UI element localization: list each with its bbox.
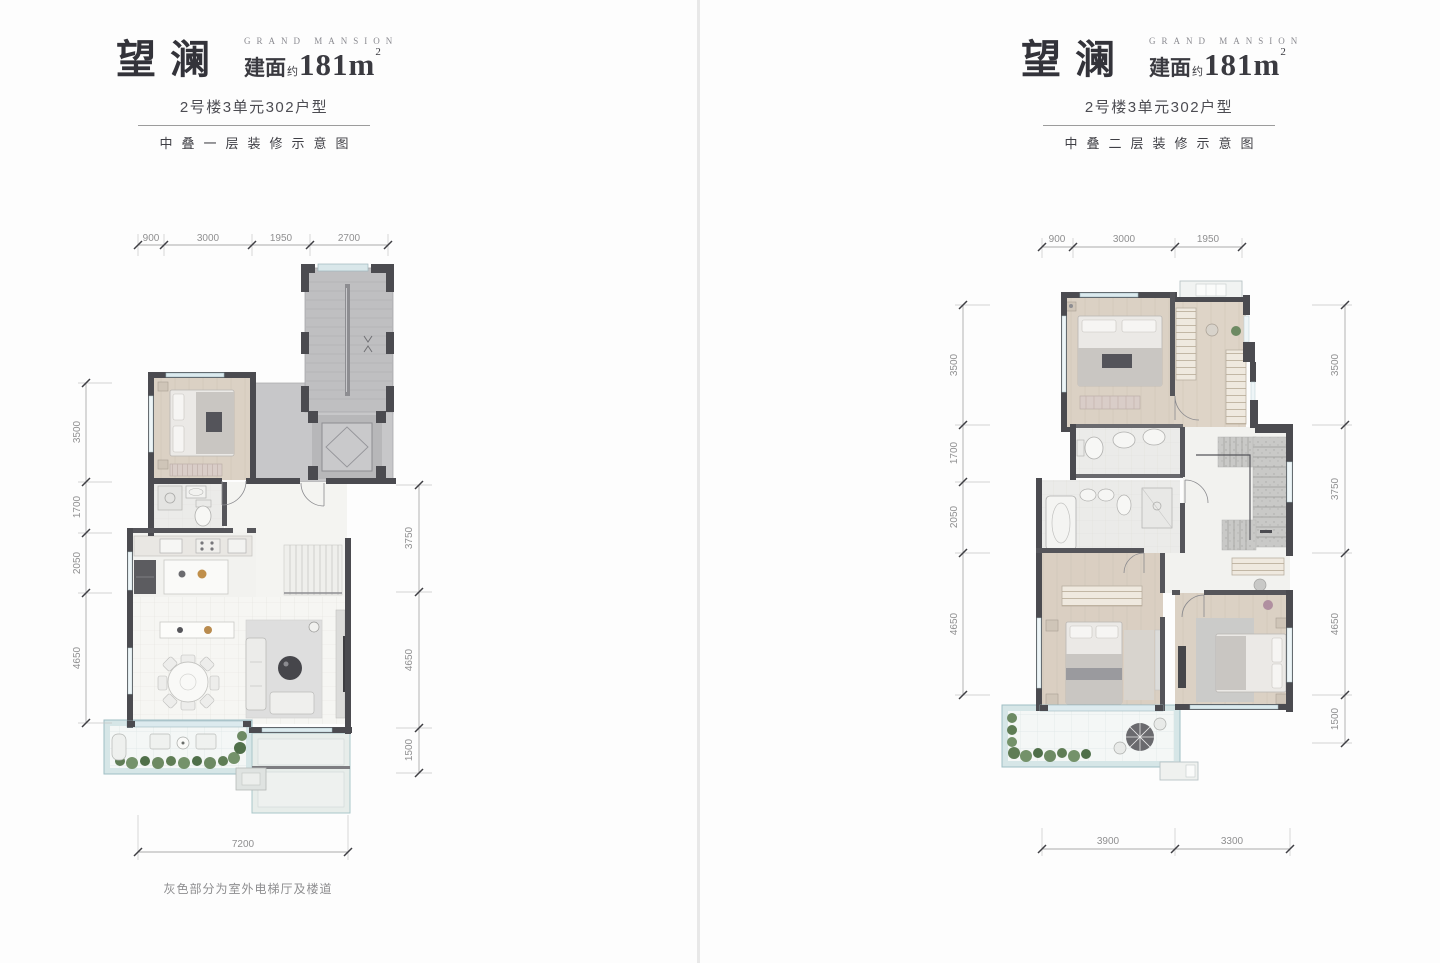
sofa xyxy=(246,638,266,710)
dim-label: 3500 xyxy=(72,420,83,443)
chaise xyxy=(270,692,314,714)
nightstand xyxy=(158,460,168,469)
stairwell-window xyxy=(318,264,368,271)
dim-label: 1500 xyxy=(404,738,415,761)
floorplan-drawing-level2: 900 3000 1950 3500 1700 2050 4650 3500 3… xyxy=(703,0,1440,963)
decor xyxy=(1263,600,1273,610)
dim-label: 7200 xyxy=(232,839,255,850)
balcony-chair xyxy=(1154,718,1166,730)
dim-label: 2050 xyxy=(72,551,83,574)
kitchen-island xyxy=(164,560,228,594)
sink xyxy=(1098,489,1114,501)
dim-label: 3000 xyxy=(1113,234,1136,245)
shower xyxy=(158,486,182,510)
floorplan-panel-level1: 望澜 GRAND MANSION 建面约181m2 2号楼3单元302户型 中叠… xyxy=(0,0,697,963)
terrace xyxy=(236,733,350,813)
tv-console xyxy=(1178,646,1186,688)
dim-label: 3300 xyxy=(1221,836,1244,847)
dim-label: 900 xyxy=(1049,234,1066,245)
rug xyxy=(1124,630,1154,700)
dim-label: 1950 xyxy=(270,233,293,244)
sink xyxy=(1080,489,1096,501)
toilet xyxy=(1117,495,1131,515)
dim-label: 4650 xyxy=(404,648,415,671)
panel-divider xyxy=(697,0,700,963)
dining-set xyxy=(158,655,219,710)
coffee-table xyxy=(278,656,302,680)
toilet xyxy=(195,506,211,526)
floorplan-drawing-level1: 900 3000 1950 2700 3500 1700 2050 4650 3… xyxy=(0,0,697,963)
dim-label: 3500 xyxy=(949,353,960,376)
nightstand xyxy=(158,382,168,391)
dim-label: 4650 xyxy=(72,646,83,669)
floorplan-sheet: 望澜 GRAND MANSION 建面约181m2 2号楼3单元302户型 中叠… xyxy=(0,0,1440,963)
dim-label: 2050 xyxy=(949,505,960,528)
dim-label: 3500 xyxy=(1330,353,1341,376)
stool xyxy=(1206,324,1218,336)
balcony-chair xyxy=(196,734,216,749)
living-dining xyxy=(158,610,346,718)
dim-label: 4650 xyxy=(949,612,960,635)
nightstand xyxy=(1276,694,1287,704)
stair-rail xyxy=(345,284,350,396)
elevator xyxy=(308,411,386,480)
dim-label: 4650 xyxy=(1330,612,1341,635)
plant xyxy=(1231,326,1241,336)
nightstand xyxy=(1276,618,1287,628)
sink xyxy=(1143,429,1165,445)
dim-label: 3750 xyxy=(1330,477,1341,500)
dim-label: 3750 xyxy=(404,526,415,549)
balcony-2f xyxy=(1002,705,1180,767)
balcony-chair xyxy=(150,734,170,749)
balcony-chair xyxy=(1114,742,1126,754)
dim-label: 3900 xyxy=(1097,836,1120,847)
dim-label: 1700 xyxy=(949,441,960,464)
balcony xyxy=(104,720,252,774)
console-table xyxy=(160,622,234,638)
dim-label: 2700 xyxy=(338,233,361,244)
dim-label: 900 xyxy=(143,233,160,244)
dim-label: 1700 xyxy=(72,495,83,518)
gray-area-note: 灰色部分为室外电梯厅及楼道 xyxy=(118,880,378,897)
nightstand xyxy=(1046,694,1058,705)
sink xyxy=(1113,432,1135,448)
dim-label: 1500 xyxy=(1330,707,1341,730)
toilet xyxy=(1085,437,1103,459)
dim-label: 1950 xyxy=(1197,234,1220,245)
pouf xyxy=(1254,579,1266,591)
upper-balcony xyxy=(1180,281,1242,299)
dim-label: 3000 xyxy=(197,233,220,244)
bathtub xyxy=(1046,496,1076,550)
protrusion xyxy=(1160,762,1198,780)
nightstand xyxy=(1046,620,1058,631)
floorplan-panel-level2: 望澜 GRAND MANSION 建面约181m2 2号楼3单元302户型 中叠… xyxy=(703,0,1440,963)
interior-stairs xyxy=(284,545,342,595)
